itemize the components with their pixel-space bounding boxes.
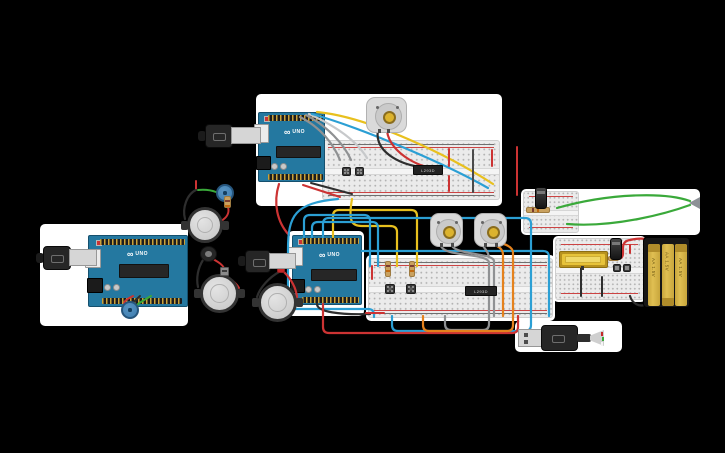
battery-cell-2: AA 1.5V (662, 244, 674, 306)
battery-cell-label: AA 1.5V (678, 258, 683, 277)
usb-icon (213, 133, 226, 141)
pushbutton-right-1[interactable] (613, 264, 621, 272)
usb-cable-middle-plug[interactable] (245, 250, 271, 273)
wire-black-a-bottom[interactable] (311, 183, 352, 194)
usb-icon (552, 335, 565, 343)
probe-tip[interactable] (689, 197, 700, 209)
speaker-2[interactable] (200, 274, 239, 313)
resistor-band (386, 270, 390, 272)
speaker-3[interactable] (258, 283, 297, 322)
resistor-speaker[interactable] (224, 196, 231, 208)
resistor-band (410, 265, 414, 267)
wire-green-s1[interactable] (198, 190, 216, 192)
electrolytic-capacitor-topright[interactable] (535, 187, 547, 209)
resistor-breadboard-1[interactable] (385, 261, 391, 277)
usb-cable-left-plug[interactable] (43, 246, 71, 270)
stripped-wire-red (601, 332, 603, 336)
usb-cable-top-connector[interactable] (231, 127, 261, 144)
stripped-wire-green (602, 337, 604, 341)
usb-contact (524, 333, 528, 337)
loose-usb-plug[interactable] (541, 325, 578, 351)
electrolytic-capacitor-right[interactable] (610, 238, 622, 260)
resistor-band (410, 270, 414, 272)
speaker-terminal[interactable] (296, 298, 303, 307)
gearmotor-top[interactable] (366, 97, 407, 133)
pushbutton-right-2[interactable] (623, 264, 631, 272)
lcd-module[interactable] (559, 251, 608, 268)
usb-cable-top-plug[interactable] (205, 124, 233, 148)
usb-cable-middle-connector[interactable] (269, 253, 296, 269)
motor-screw (437, 221, 440, 224)
gearmotor-right[interactable] (474, 213, 507, 247)
speaker-terminal[interactable] (252, 298, 259, 307)
pushbutton-bottom-2[interactable] (406, 284, 416, 294)
piezo-buzzer[interactable] (200, 246, 217, 262)
motor-terminal[interactable] (495, 243, 498, 247)
battery-cell-3: AA 1.5V (675, 244, 687, 306)
loose-usb-connector[interactable] (518, 329, 542, 347)
circuit-canvas: ∞UNO ∞UNO ∞UNO (0, 0, 725, 453)
gearmotor-left[interactable] (430, 213, 463, 247)
usb-icon (253, 259, 266, 267)
motor-screw (396, 106, 399, 109)
resistor-band (225, 205, 230, 207)
battery-cell-1: AA 1.5V (648, 244, 660, 306)
motor-terminal[interactable] (378, 129, 381, 133)
motor-terminal[interactable] (484, 243, 487, 247)
battery-cell-label: AA 1.5V (651, 258, 656, 277)
wire-green-d2[interactable] (567, 205, 690, 225)
motor-driver-ic-top[interactable]: L293D (413, 165, 443, 175)
motor-terminal[interactable] (451, 243, 454, 247)
stripped-wire-white (601, 342, 603, 346)
pushbutton-bottom-1[interactable] (385, 284, 395, 294)
module-pin (581, 266, 584, 270)
motor-driver-ic-bottom[interactable]: L293D (465, 286, 497, 296)
diode[interactable] (220, 267, 229, 276)
wire-red-motor-a[interactable] (387, 131, 434, 167)
battery-cap (648, 244, 660, 252)
motor-terminal[interactable] (440, 243, 443, 247)
pushbutton-top-2[interactable] (355, 167, 364, 176)
speaker-terminal[interactable] (222, 221, 229, 230)
speaker-terminal[interactable] (181, 221, 188, 230)
motor-shaft (487, 226, 500, 239)
battery-cap (662, 298, 674, 306)
motor-screw (481, 221, 484, 224)
loose-usb-cord[interactable] (577, 334, 591, 342)
pushbutton-top-1[interactable] (342, 167, 351, 176)
battery-cell-label: AA 1.5V (665, 252, 670, 271)
wire-gray-a2[interactable] (306, 115, 351, 160)
battery-cap (675, 244, 687, 252)
resistor-band (225, 200, 230, 202)
usb-icon (51, 255, 64, 263)
module-screen (565, 256, 601, 263)
speaker-terminal[interactable] (194, 289, 201, 298)
wire-orange-m2a[interactable] (497, 246, 503, 316)
wiring-layer (0, 0, 725, 453)
usb-contact (524, 340, 528, 344)
usb-cable-left-connector[interactable] (69, 249, 97, 266)
resistor-band (386, 265, 390, 267)
resistor-breadboard-2[interactable] (409, 261, 415, 277)
battery-pack[interactable]: AA 1.5V AA 1.5V AA 1.5V (643, 237, 690, 308)
speaker-terminal[interactable] (238, 289, 245, 298)
motor-screw (376, 106, 379, 109)
wire-green-d1[interactable] (557, 195, 690, 208)
motor-terminal[interactable] (387, 129, 390, 133)
speaker-1[interactable] (187, 207, 223, 243)
wire-red-a-to-b[interactable] (276, 184, 289, 235)
motor-shaft (383, 111, 396, 124)
motor-screw (455, 221, 458, 224)
potentiometer-left[interactable] (121, 301, 139, 319)
motor-shaft (443, 226, 456, 239)
motor-screw (499, 221, 502, 224)
resistor-band (532, 208, 534, 212)
